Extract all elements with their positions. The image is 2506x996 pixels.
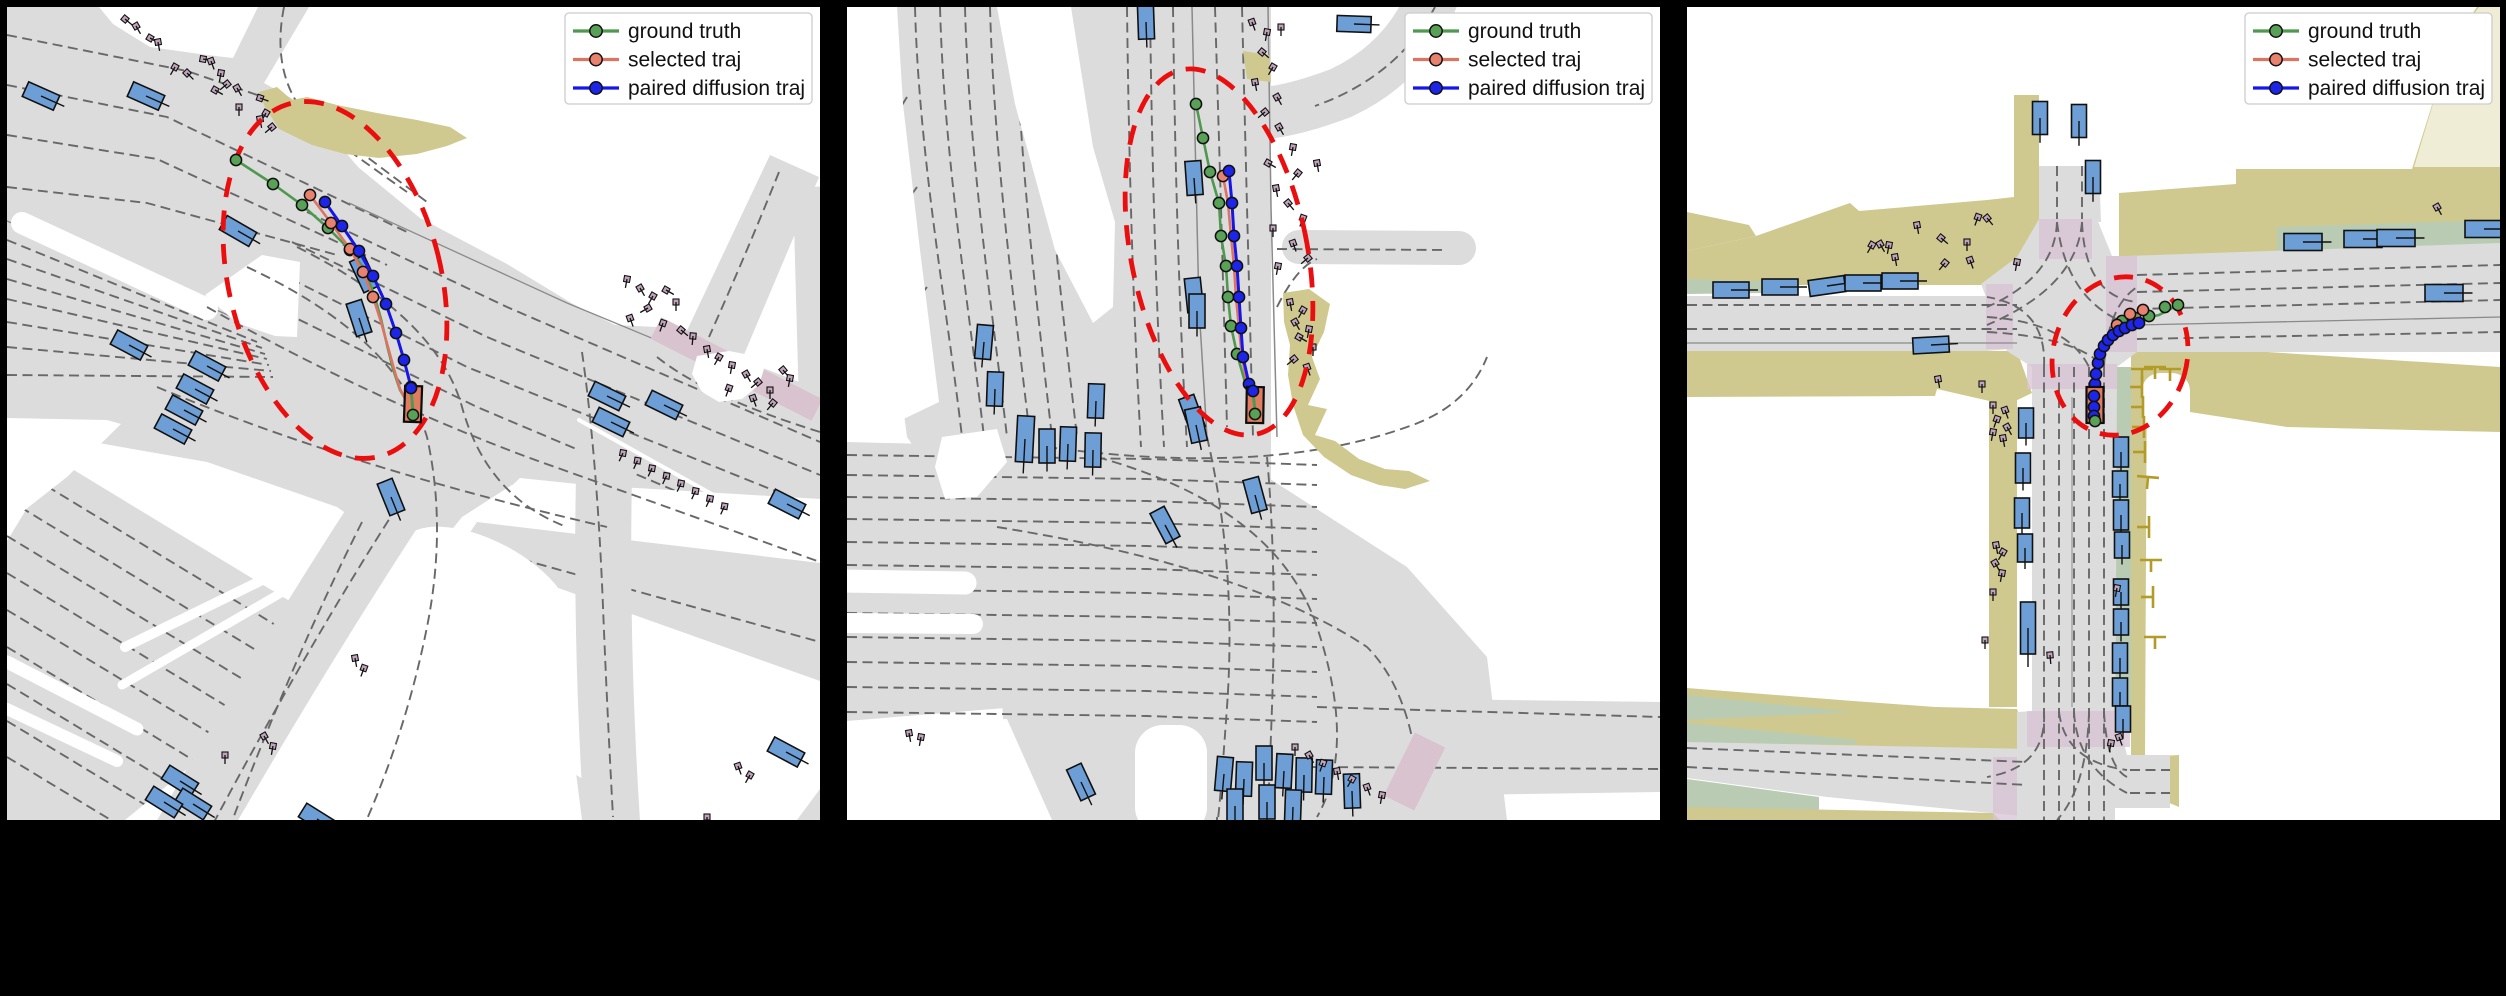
svg-text:selected traj: selected traj [1468, 49, 1581, 72]
svg-text:selected traj: selected traj [628, 49, 741, 72]
svg-text:selected traj: selected traj [2308, 49, 2421, 72]
svg-text:paired diffusion traj: paired diffusion traj [628, 77, 805, 100]
svg-text:ground truth: ground truth [1468, 20, 1581, 43]
svg-text:paired diffusion traj: paired diffusion traj [1468, 77, 1645, 100]
svg-text:ground truth: ground truth [2308, 20, 2421, 43]
svg-text:ground truth: ground truth [628, 20, 741, 43]
svg-text:paired diffusion traj: paired diffusion traj [2308, 77, 2485, 100]
